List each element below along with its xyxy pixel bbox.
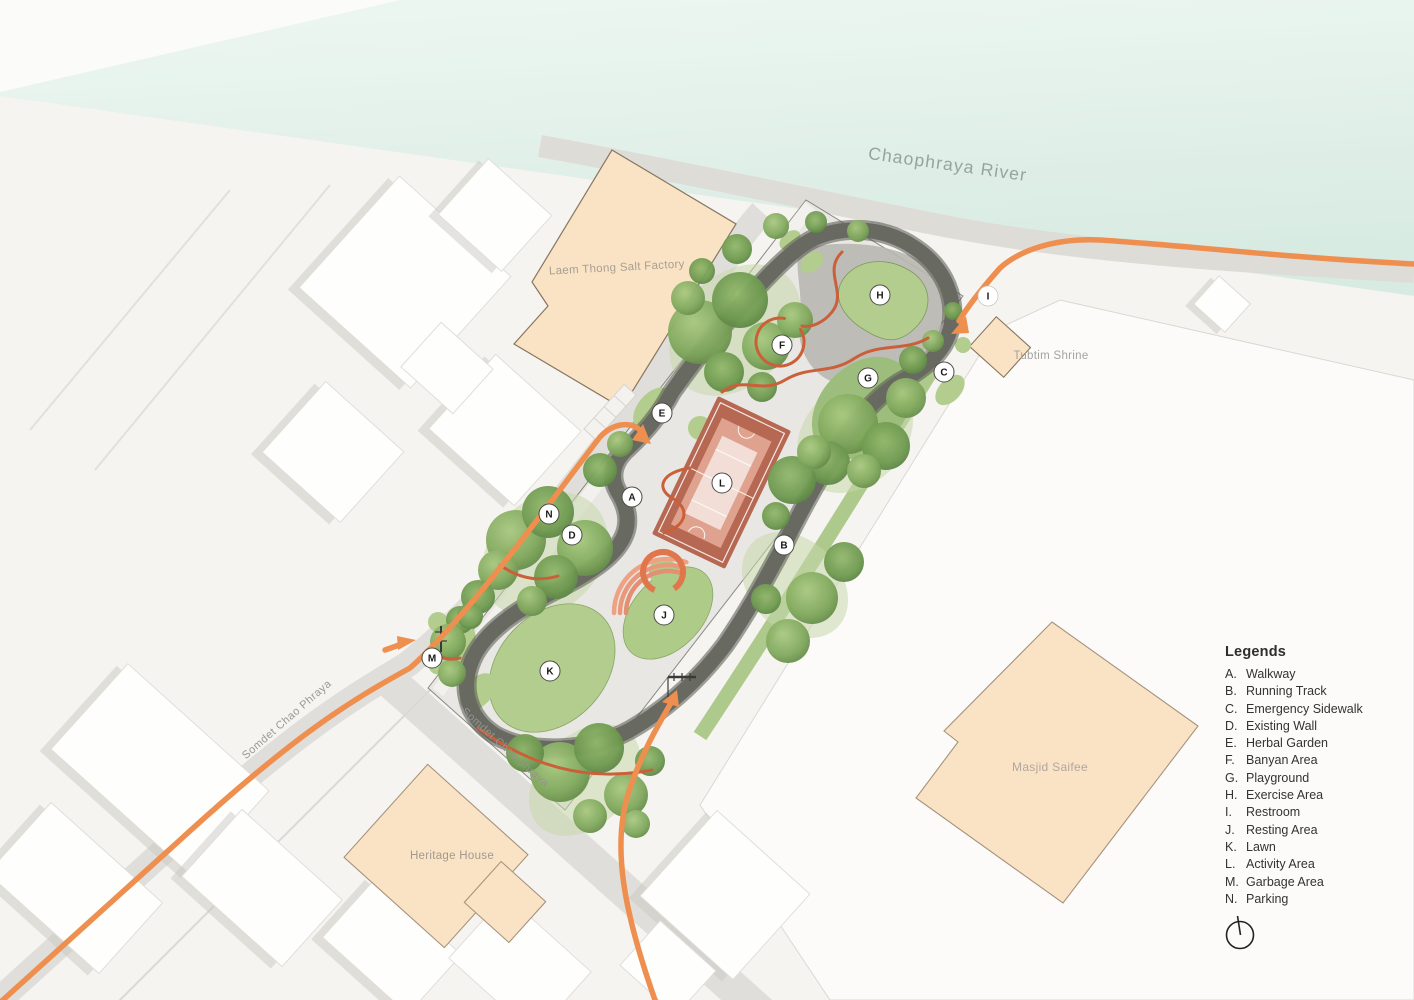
tubtim-shrine-label: Tubtim Shrine <box>1013 350 1088 362</box>
svg-text:H: H <box>876 291 883 302</box>
legend-item-playground: G.Playground <box>1225 770 1405 787</box>
legend-item-existing-wall: D.Existing Wall <box>1225 718 1405 735</box>
svg-text:E: E <box>659 409 666 420</box>
masjid-saifee-label: Masjid Saifee <box>1012 760 1088 774</box>
legend-item-parking: N.Parking <box>1225 891 1405 908</box>
svg-text:I: I <box>987 292 990 303</box>
marker-C: C <box>934 362 954 382</box>
marker-L: L <box>712 473 732 493</box>
legend: Legends A.Walkway B.Running Track C.Emer… <box>1225 644 1405 908</box>
legend-item-running-track: B.Running Track <box>1225 683 1405 700</box>
marker-J: J <box>654 605 674 625</box>
marker-B: B <box>774 535 794 555</box>
legend-item-emergency-sidewalk: C.Emergency Sidewalk <box>1225 701 1405 718</box>
marker-D: D <box>562 525 582 545</box>
svg-text:G: G <box>864 374 872 385</box>
svg-text:C: C <box>940 368 947 379</box>
svg-text:B: B <box>780 541 787 552</box>
legend-item-exercise-area: H.Exercise Area <box>1225 787 1405 804</box>
marker-M: M <box>422 648 442 668</box>
svg-text:K: K <box>546 667 554 678</box>
site-plan: Chaophraya River Laem Thong Salt Factory… <box>0 0 1414 1000</box>
marker-I: I <box>978 286 998 306</box>
marker-H: H <box>870 285 890 305</box>
marker-N: N <box>539 504 559 524</box>
site-plan-canvas: Chaophraya River Laem Thong Salt Factory… <box>0 0 1414 1000</box>
svg-text:F: F <box>779 341 785 352</box>
heritage-house-label: Heritage House <box>410 850 494 862</box>
marker-F: F <box>772 335 792 355</box>
legend-item-restroom: I.Restroom <box>1225 804 1405 821</box>
legend-item-garbage-area: M.Garbage Area <box>1225 874 1405 891</box>
marker-G: G <box>858 368 878 388</box>
legend-item-lawn: K.Lawn <box>1225 839 1405 856</box>
marker-A: A <box>622 487 642 507</box>
marker-K: K <box>540 661 560 681</box>
legend-title: Legends <box>1225 644 1405 660</box>
svg-text:D: D <box>568 531 575 542</box>
legend-item-herbal-garden: E.Herbal Garden <box>1225 735 1405 752</box>
legend-item-activity-area: L.Activity Area <box>1225 856 1405 873</box>
svg-text:N: N <box>545 510 552 521</box>
legend-item-banyan-area: F.Banyan Area <box>1225 752 1405 769</box>
legend-item-resting-area: J.Resting Area <box>1225 822 1405 839</box>
svg-text:J: J <box>661 611 667 622</box>
svg-text:M: M <box>428 654 436 665</box>
svg-text:A: A <box>628 493 635 504</box>
marker-E: E <box>652 403 672 423</box>
svg-text:L: L <box>719 479 725 490</box>
legend-item-walkway: A.Walkway <box>1225 666 1405 683</box>
